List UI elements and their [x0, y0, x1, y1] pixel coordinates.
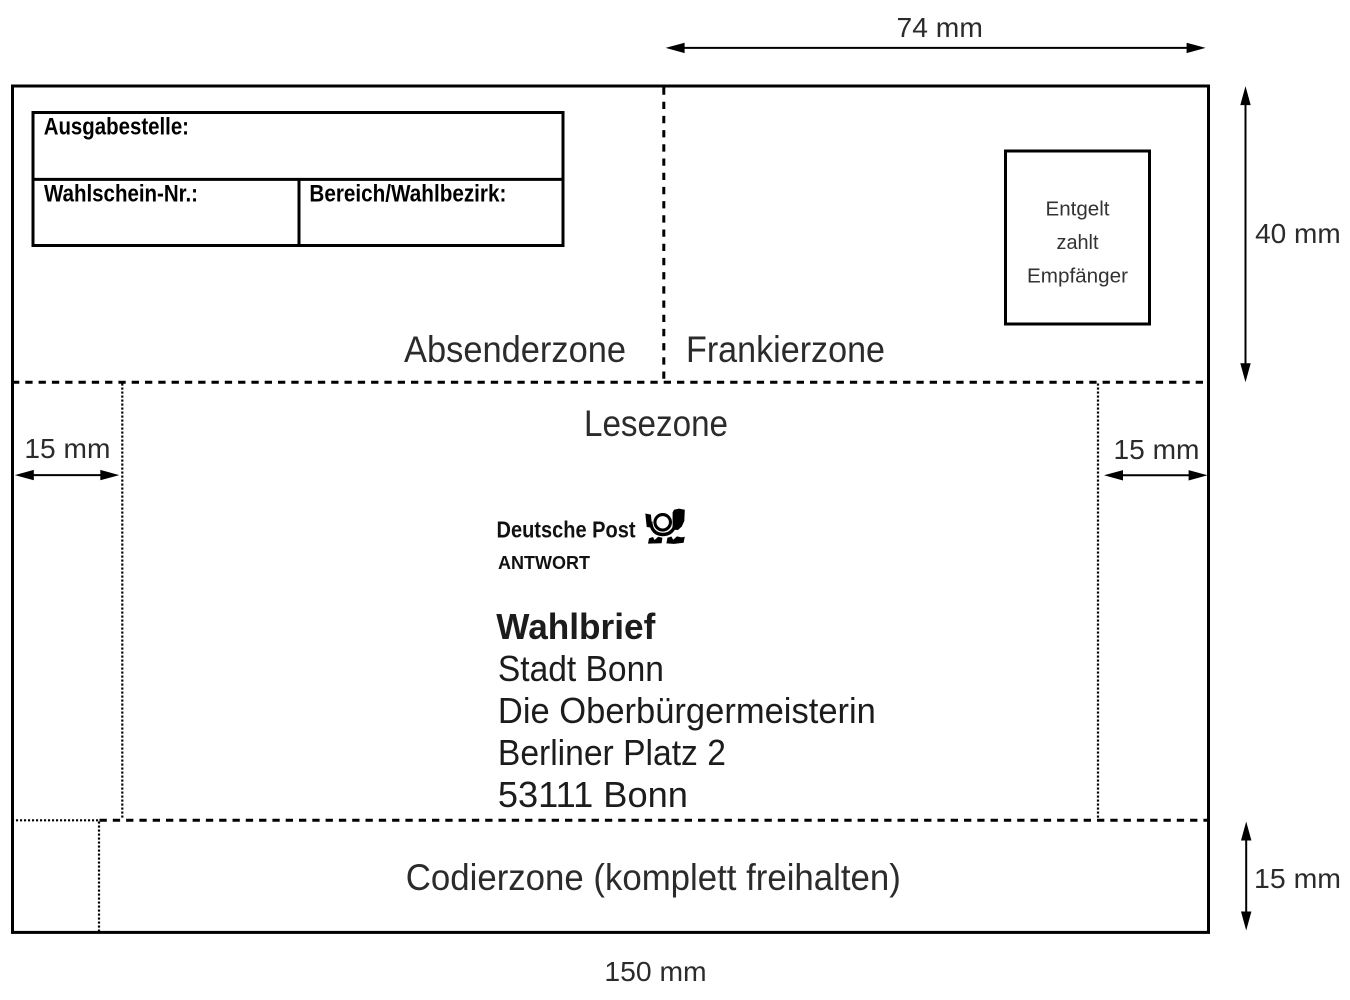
- svg-text:Lesezone: Lesezone: [584, 403, 728, 444]
- svg-text:Berliner Platz 2: Berliner Platz 2: [498, 732, 726, 773]
- svg-text:40 mm: 40 mm: [1255, 218, 1341, 249]
- svg-text:15 mm: 15 mm: [24, 433, 110, 464]
- svg-text:Absenderzone: Absenderzone: [404, 329, 626, 370]
- svg-text:15 mm: 15 mm: [1114, 434, 1200, 465]
- svg-text:Entgelt: Entgelt: [1046, 199, 1110, 221]
- svg-text:Empfänger: Empfänger: [1027, 265, 1128, 287]
- svg-text:Stadt Bonn: Stadt Bonn: [498, 648, 664, 689]
- svg-text:Codierzone (komplett freihalte: Codierzone (komplett freihalten): [406, 857, 901, 898]
- svg-text:Bereich/Wahlbezirk:: Bereich/Wahlbezirk:: [309, 180, 506, 207]
- svg-text:Deutsche Post: Deutsche Post: [497, 517, 636, 543]
- svg-text:ANTWORT: ANTWORT: [498, 553, 590, 573]
- svg-text:Wahlschein-Nr.:: Wahlschein-Nr.:: [44, 180, 198, 207]
- svg-text:150 mm: 150 mm: [604, 956, 706, 987]
- svg-text:Die Oberbürgermeisterin: Die Oberbürgermeisterin: [498, 690, 876, 731]
- svg-text:Frankierzone: Frankierzone: [686, 329, 885, 370]
- svg-text:53111 Bonn: 53111 Bonn: [498, 774, 688, 815]
- svg-text:Ausgabestelle:: Ausgabestelle:: [44, 113, 189, 140]
- svg-text:Wahlbrief: Wahlbrief: [496, 606, 656, 647]
- svg-text:zahlt: zahlt: [1057, 232, 1099, 254]
- svg-text:15 mm: 15 mm: [1254, 863, 1341, 894]
- svg-text:74 mm: 74 mm: [897, 12, 983, 43]
